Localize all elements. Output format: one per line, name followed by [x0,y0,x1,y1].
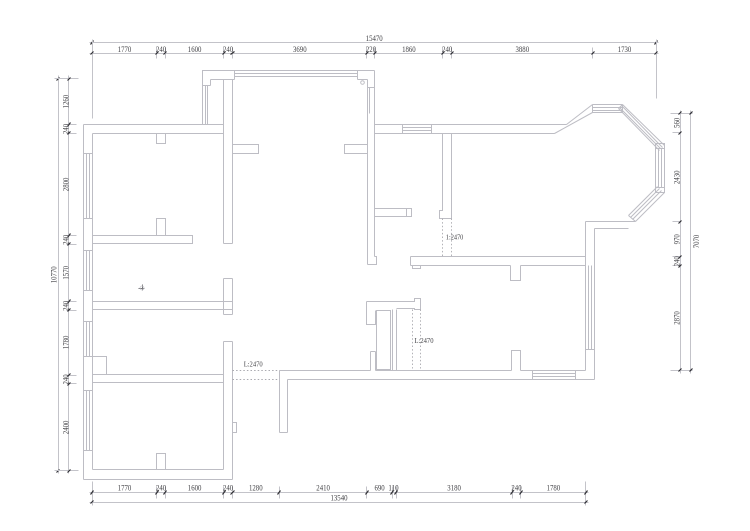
svg-text:240: 240 [511,483,521,492]
svg-text:15470: 15470 [366,34,383,43]
svg-text:240: 240 [223,483,233,492]
svg-text:3690: 3690 [293,45,307,54]
svg-text:240: 240 [61,124,70,134]
svg-text:7070: 7070 [692,235,701,249]
svg-text:1:2470: 1:2470 [446,233,464,242]
svg-text:L:2470: L:2470 [415,336,434,345]
svg-text:110: 110 [388,483,398,492]
svg-text:560: 560 [673,118,682,128]
svg-text:240: 240 [673,256,682,266]
svg-text:1600: 1600 [188,45,202,54]
svg-text:240: 240 [156,45,166,54]
svg-text:240: 240 [61,301,70,311]
svg-text:1570: 1570 [61,266,70,280]
svg-text:2430: 2430 [673,171,682,185]
svg-text:2400: 2400 [61,421,70,435]
svg-text:240: 240 [223,45,233,54]
svg-text:1860: 1860 [402,45,416,54]
svg-text:3880: 3880 [516,45,530,54]
svg-text:3180: 3180 [447,483,461,492]
svg-text:2800: 2800 [61,178,70,192]
svg-text:970: 970 [673,234,682,244]
svg-text:2410: 2410 [316,483,330,492]
svg-text:240: 240 [156,483,166,492]
svg-text:1260: 1260 [61,95,70,109]
svg-text:240: 240 [61,374,70,384]
svg-text:1600: 1600 [188,483,202,492]
svg-text:1770: 1770 [118,483,132,492]
svg-text:1730: 1730 [618,45,632,54]
svg-text:10770: 10770 [49,266,58,283]
svg-text:220: 220 [366,45,376,54]
svg-text:1770: 1770 [118,45,132,54]
svg-text:240: 240 [61,235,70,245]
svg-text:2870: 2870 [673,311,682,325]
svg-text:690: 690 [375,483,385,492]
svg-text:240: 240 [442,45,452,54]
svg-text:1780: 1780 [547,483,561,492]
svg-text:1280: 1280 [249,483,263,492]
svg-text:1780: 1780 [61,336,70,350]
svg-text:L:2470: L:2470 [244,360,263,369]
svg-text:13540: 13540 [331,494,348,503]
